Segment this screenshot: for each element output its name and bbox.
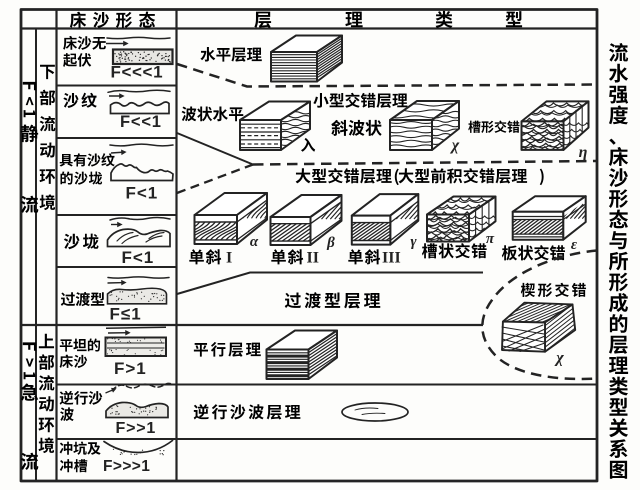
svg-text:F>>1: F>>1 <box>116 420 157 437</box>
svg-text:χ: χ <box>450 137 460 154</box>
svg-text:η: η <box>579 144 588 161</box>
svg-text:χ: χ <box>554 350 564 367</box>
svg-text:F>>>1: F>>>1 <box>103 458 150 475</box>
svg-text:β: β <box>326 235 335 251</box>
svg-text:I: I <box>226 250 232 267</box>
svg-text:F<1: F<1 <box>126 184 159 203</box>
svg-text:F<1: F<1 <box>122 248 155 267</box>
svg-text:π: π <box>486 231 495 247</box>
svg-text:α: α <box>250 234 259 250</box>
svg-text:F≤1: F≤1 <box>110 305 142 324</box>
svg-text:F>1: F>1 <box>114 359 147 378</box>
svg-text:γ: γ <box>410 234 417 250</box>
svg-text:ε: ε <box>571 237 578 253</box>
svg-text:F<<1: F<<1 <box>120 113 162 131</box>
svg-text:III: III <box>382 250 401 267</box>
svg-text:F<<<1: F<<<1 <box>111 63 164 82</box>
svg-text:II: II <box>307 250 319 267</box>
